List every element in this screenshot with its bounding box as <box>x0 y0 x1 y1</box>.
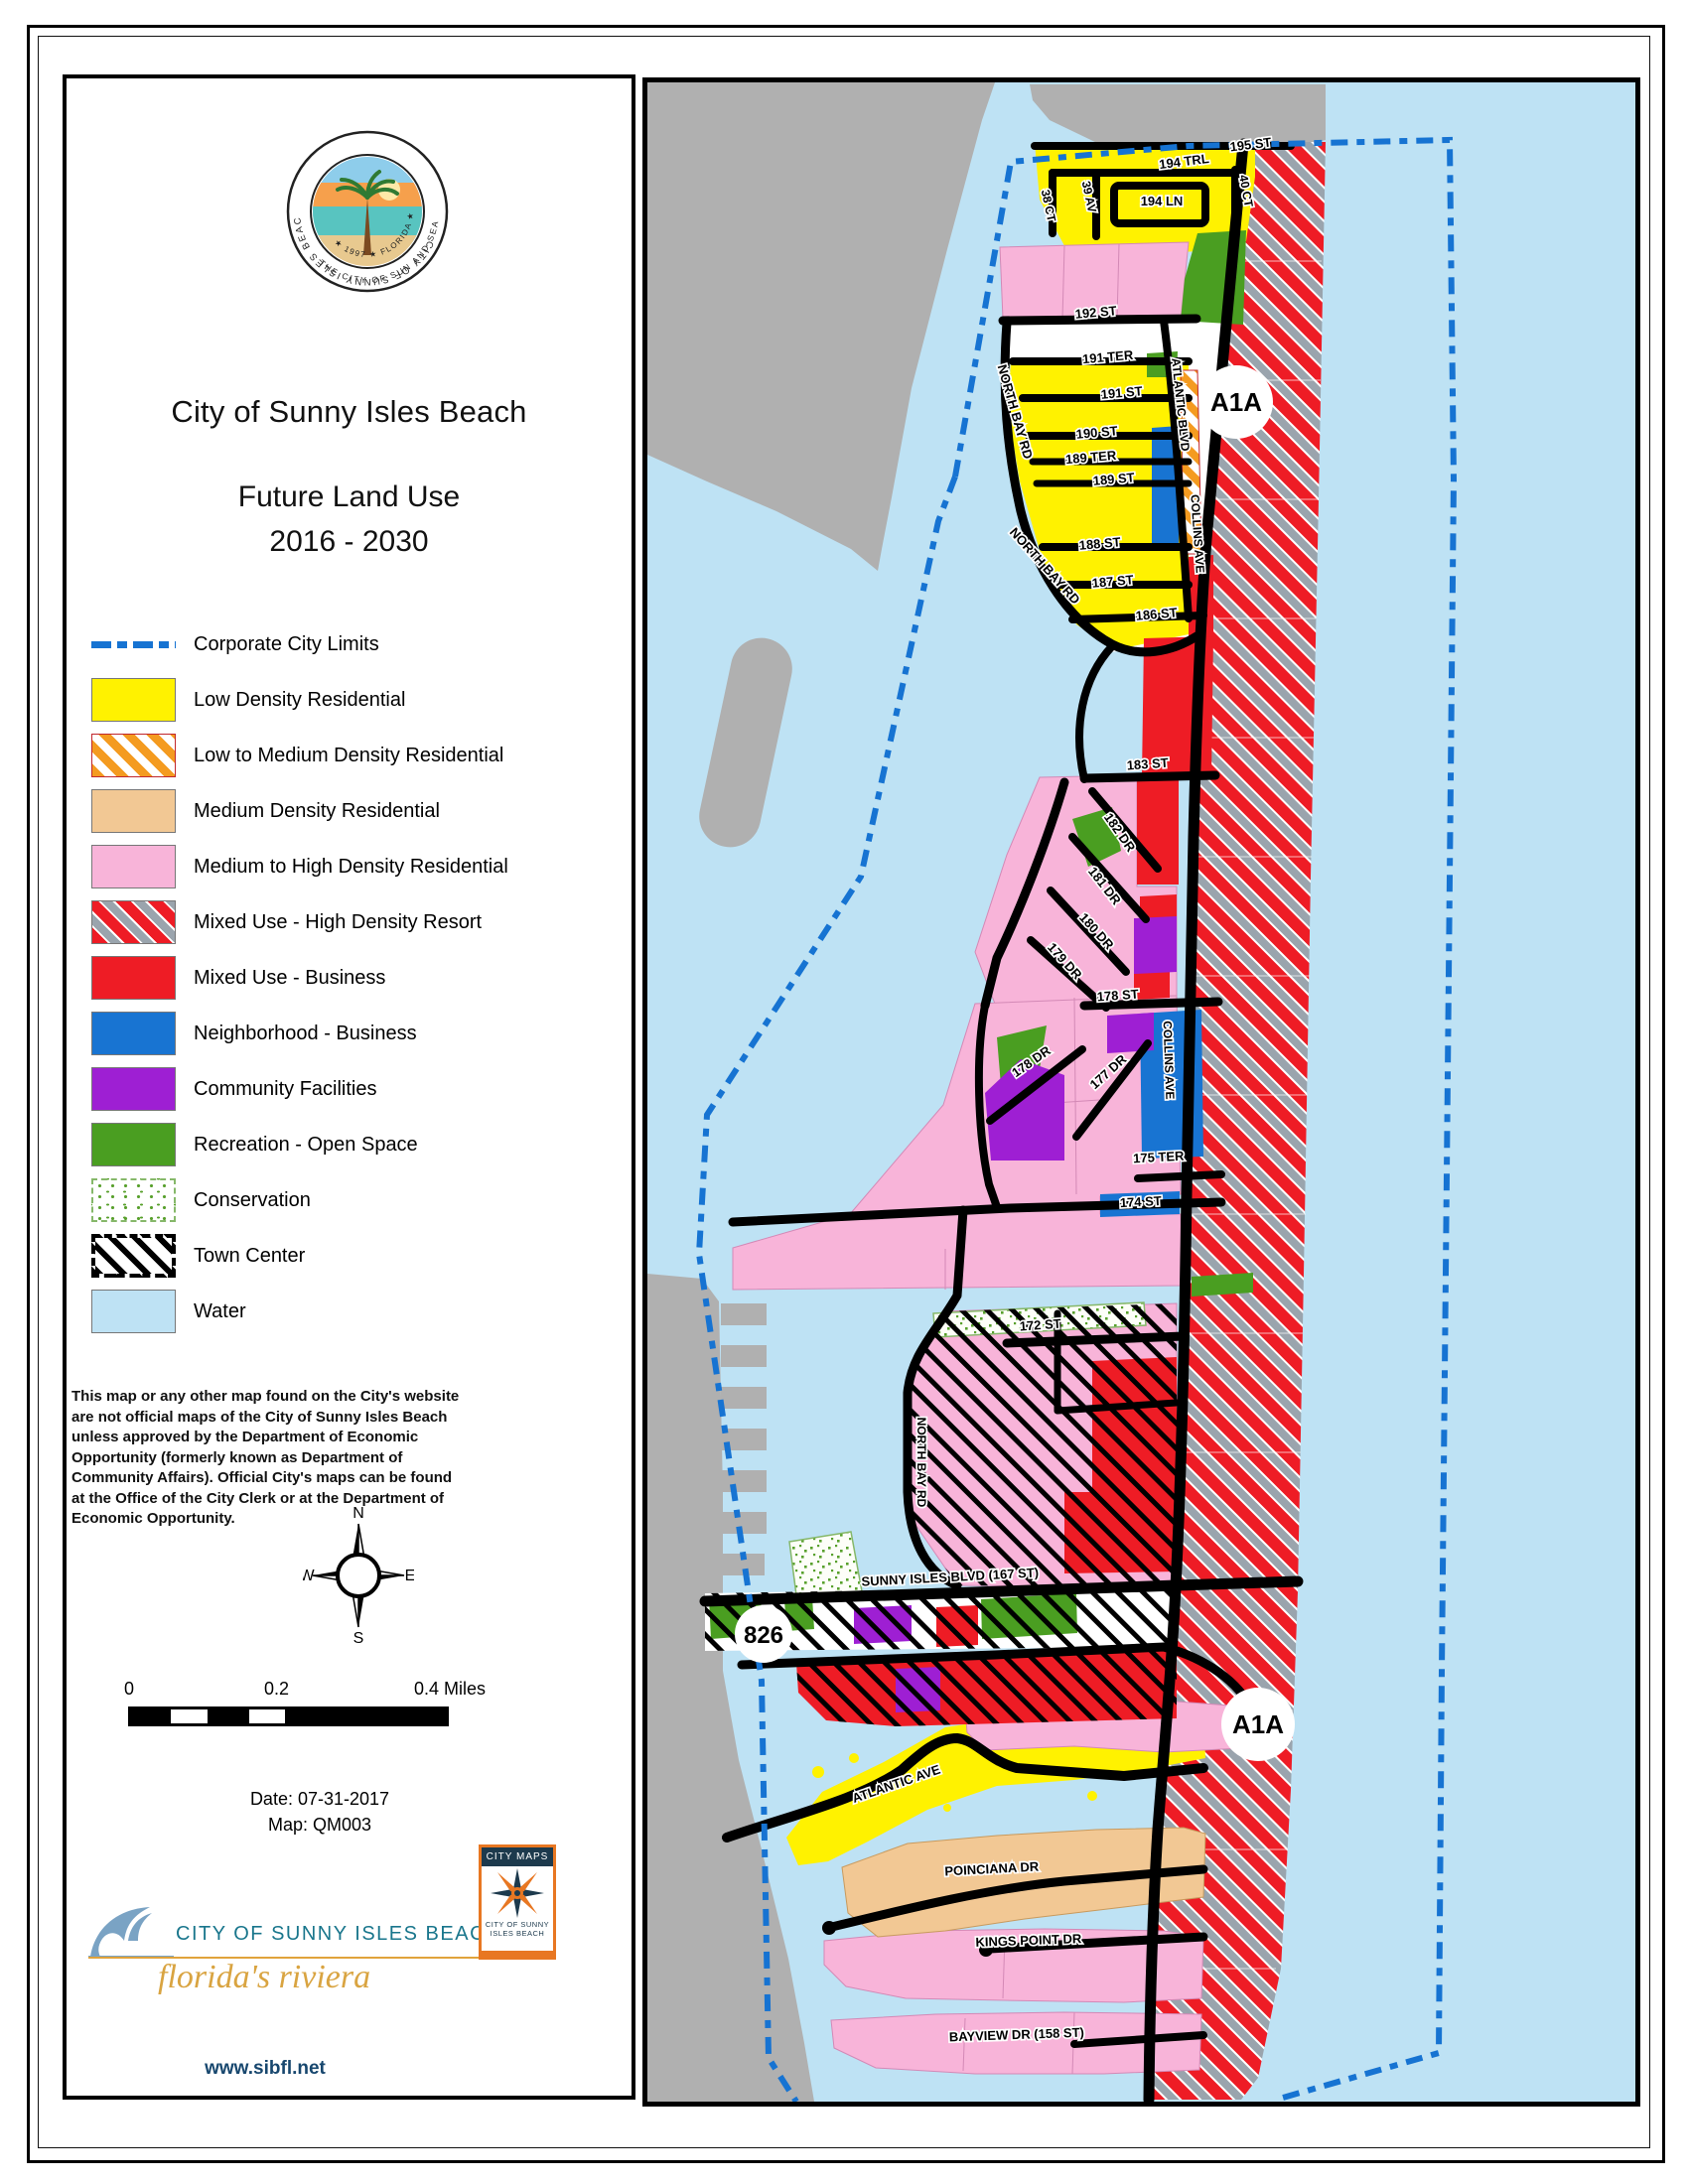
legend-swatch-conservation <box>91 1178 176 1222</box>
legend-swatch-med-high <box>91 845 176 888</box>
brand-name: CITY OF SUNNY ISLES BEACH <box>176 1923 501 1946</box>
legend-swatch-recreation <box>91 1123 176 1166</box>
legend-label: Conservation <box>194 1189 311 1212</box>
date-block: Date: 07-31-2017 Map: QM003 <box>67 1786 573 1838</box>
street-label: COLLINS AVE <box>1161 1021 1178 1100</box>
legend-label: Recreation - Open Space <box>194 1134 418 1157</box>
scale-mid: 0.2 <box>264 1679 289 1700</box>
city-maps-org-line2: ISLES BEACH <box>482 1929 553 1938</box>
legend-label: Low to Medium Density Residential <box>194 745 503 767</box>
legend-label: Town Center <box>194 1245 305 1268</box>
website-url: www.sibfl.net <box>126 2058 404 2080</box>
legend-label: Water <box>194 1300 246 1323</box>
legend-row: Medium Density Residential <box>91 783 608 839</box>
legend-row: Medium to High Density Residential <box>91 839 608 894</box>
date-line: Date: 07-31-2017 <box>67 1786 573 1812</box>
legend-row: Neighborhood - Business <box>91 1006 608 1061</box>
street-label: 194 LN <box>1141 194 1184 208</box>
compass-e: E <box>405 1568 414 1584</box>
legend-swatch-mixed-business <box>91 956 176 1000</box>
map-number-line: Map: QM003 <box>67 1812 573 1838</box>
legend-swatch-community <box>91 1067 176 1111</box>
scale-end: 0.4 Miles <box>414 1679 486 1700</box>
legend-swatch-neighborhood-business <box>91 1012 176 1055</box>
wave-icon <box>88 1901 174 1961</box>
compass-s: S <box>353 1630 364 1645</box>
compass-w: W <box>303 1568 315 1584</box>
street-label: 175 TER <box>1133 1149 1186 1166</box>
legend-label: Low Density Residential <box>194 689 405 712</box>
legend-row: Recreation - Open Space <box>91 1117 608 1172</box>
legend-swatch-water <box>91 1290 176 1333</box>
map-title: City of Sunny Isles Beach <box>67 394 632 430</box>
legend-row: Town Center <box>91 1228 608 1284</box>
scale-bar-graphic <box>128 1706 449 1726</box>
legend-row: Low Density Residential <box>91 672 608 728</box>
legend-row: Mixed Use - High Density Resort <box>91 894 608 950</box>
legend-row: Mixed Use - Business <box>91 950 608 1006</box>
map-frame: 195 ST 194 TRL 194 LN 40 CT 39 AV 38 CT … <box>642 77 1640 2107</box>
legend-row: Water <box>91 1284 608 1339</box>
page: { "panel": { "title": "City of Sunny Isl… <box>0 0 1688 2184</box>
city-maps-star-icon <box>491 1868 544 1918</box>
legend-swatch-low-med <box>91 734 176 777</box>
map-subtitle-line2: 2016 - 2030 <box>67 525 632 559</box>
legend-panel: CITY OF SUNNY ISLES BEACH ★ 1997 ★ FLORI… <box>63 74 635 2100</box>
legend: Corporate City Limits Low Density Reside… <box>91 616 608 1339</box>
compass-n: N <box>352 1506 364 1522</box>
legend-row: Corporate City Limits <box>91 616 608 672</box>
city-brand-logo: CITY OF SUNNY ISLES BEACH florida's rivi… <box>88 1901 505 2020</box>
legend-swatch-resort <box>91 900 176 944</box>
street-label: 174 ST <box>1119 1193 1162 1210</box>
a1a-badge-north-text: A1A <box>1210 387 1262 417</box>
land-use-map: 195 ST 194 TRL 194 LN 40 CT 39 AV 38 CT … <box>647 82 1635 2102</box>
legend-label: Community Facilities <box>194 1078 376 1101</box>
legend-swatch-city-limits <box>91 641 176 648</box>
826-badge-text: 826 <box>744 1622 783 1649</box>
legend-label: Medium Density Residential <box>194 800 440 823</box>
legend-swatch-low-density <box>91 678 176 722</box>
legend-row: Community Facilities <box>91 1061 608 1117</box>
legend-label: Corporate City Limits <box>194 633 379 656</box>
legend-label: Mixed Use - High Density Resort <box>194 911 482 934</box>
street-label: 183 ST <box>1126 755 1169 773</box>
city-maps-title: CITY MAPS <box>482 1847 553 1866</box>
legend-row: Low to Medium Density Residential <box>91 728 608 783</box>
city-maps-logo: CITY MAPS CITY OF SUNNY ISLES BEACH <box>479 1844 556 1960</box>
legend-row: Conservation <box>91 1172 608 1228</box>
city-maps-org-line1: CITY OF SUNNY <box>482 1920 553 1929</box>
street-label: 172 ST <box>1019 1316 1061 1334</box>
a1a-badge-south-text: A1A <box>1232 1709 1284 1739</box>
legend-swatch-town-center <box>91 1234 176 1278</box>
legend-swatch-medium <box>91 789 176 833</box>
brand-tagline: florida's riviera <box>158 1959 370 1996</box>
street-label: NORTH BAY RD <box>914 1418 928 1508</box>
street-label: 178 ST <box>1096 987 1139 1005</box>
city-seal: CITY OF SUNNY ISLES BEACH ★ 1997 ★ FLORI… <box>280 128 455 303</box>
scale-bar: 0 0.2 0.4 Miles <box>128 1679 456 1733</box>
legend-label: Mixed Use - Business <box>194 967 385 990</box>
legend-label: Medium to High Density Residential <box>194 856 508 879</box>
map-subtitle-line1: Future Land Use <box>67 480 632 514</box>
compass-rose: N S W E <box>303 1506 414 1645</box>
legend-label: Neighborhood - Business <box>194 1023 417 1045</box>
scale-zero: 0 <box>124 1679 134 1700</box>
